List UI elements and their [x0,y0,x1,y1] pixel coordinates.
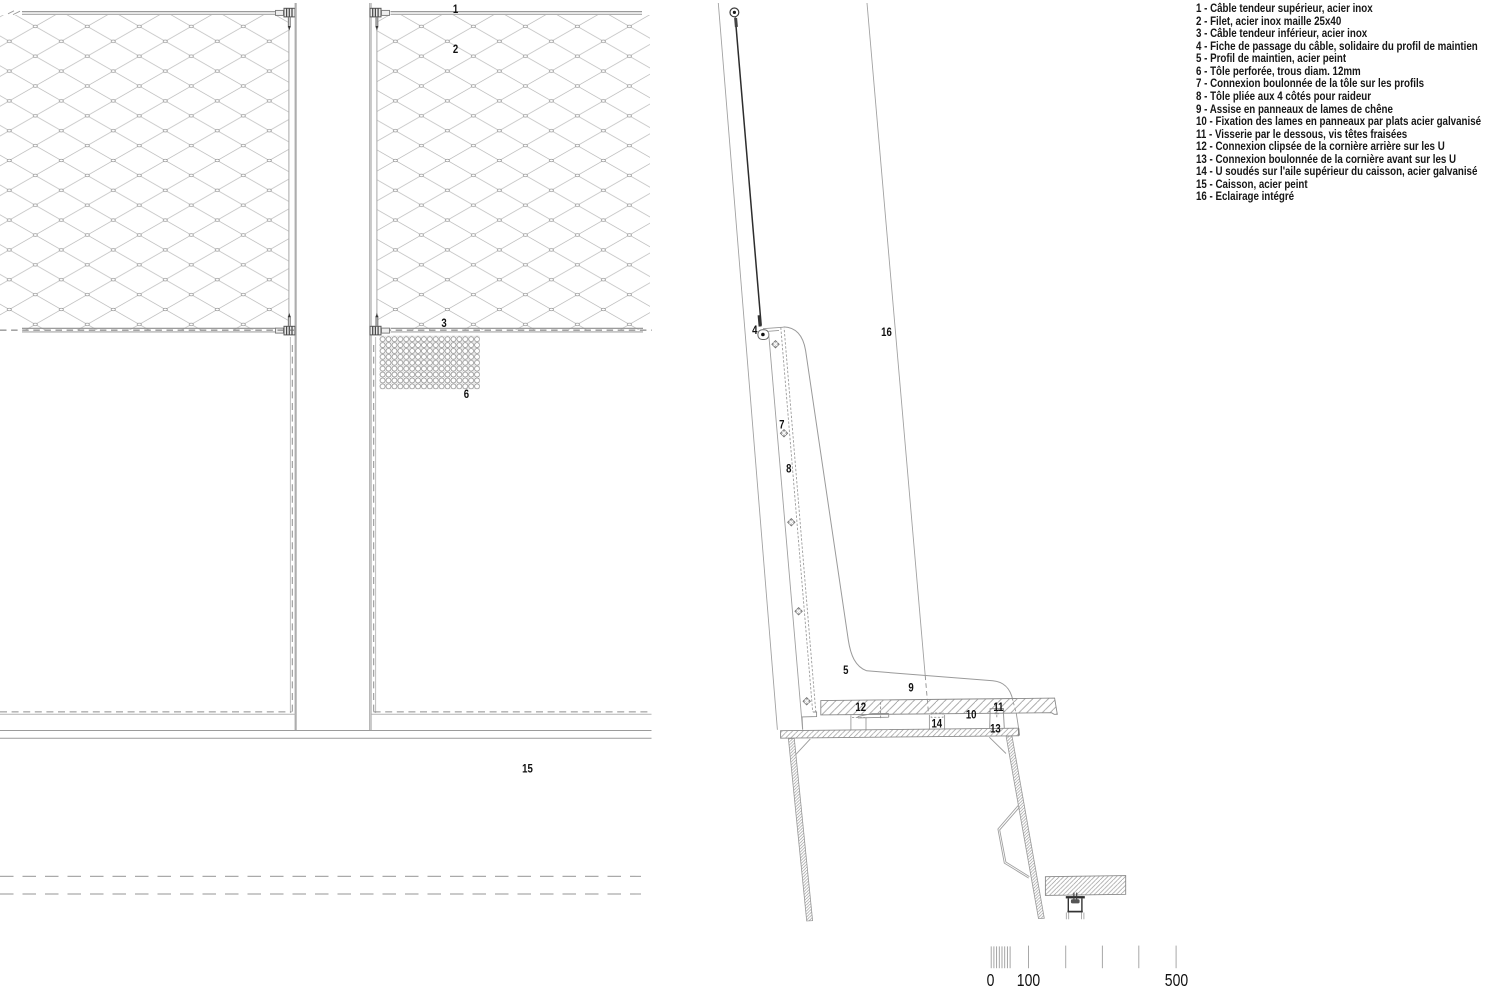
svg-text:9: 9 [908,682,913,695]
svg-text:4: 4 [752,324,757,337]
svg-text:3: 3 [441,317,446,330]
svg-text:12: 12 [855,701,866,714]
svg-text:2: 2 [453,43,458,56]
svg-text:15: 15 [522,763,533,776]
svg-text:5: 5 [843,664,848,677]
svg-text:14: 14 [931,718,942,731]
svg-text:7: 7 [779,419,784,432]
svg-text:0: 0 [987,971,995,990]
svg-text:16: 16 [881,326,892,339]
svg-text:100: 100 [1017,971,1041,990]
svg-text:10: 10 [966,709,977,722]
svg-text:13: 13 [990,722,1001,735]
svg-text:11: 11 [993,701,1003,714]
svg-text:6: 6 [464,388,469,401]
svg-text:8: 8 [786,463,791,476]
svg-text:1: 1 [453,3,458,16]
svg-text:500: 500 [1165,971,1189,990]
